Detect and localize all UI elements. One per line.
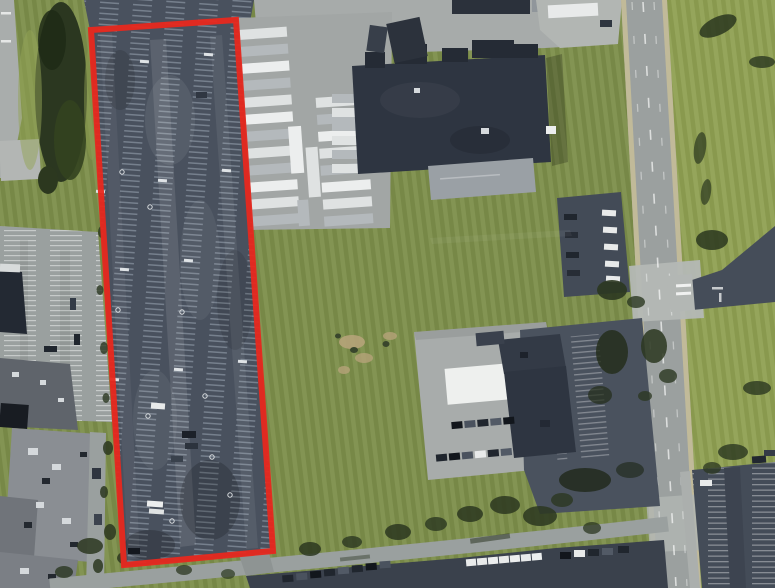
car bbox=[196, 92, 207, 98]
bush bbox=[335, 334, 341, 339]
car bbox=[510, 555, 521, 563]
car bbox=[365, 563, 376, 571]
rooftop-structure bbox=[508, 44, 538, 58]
car bbox=[605, 261, 619, 268]
pavement-marking bbox=[184, 259, 193, 263]
pavement-marking bbox=[1, 40, 11, 43]
tree-canopy bbox=[425, 517, 447, 531]
car bbox=[70, 298, 76, 310]
rooftop-unit bbox=[12, 372, 19, 377]
rooftop-unit bbox=[42, 478, 50, 484]
car bbox=[151, 403, 165, 410]
building-roof-dark-lower bbox=[504, 366, 576, 458]
north-building-edge bbox=[452, 0, 530, 14]
tree-canopy bbox=[597, 280, 627, 300]
pavement-marking bbox=[120, 268, 129, 272]
tree-shadow bbox=[616, 462, 644, 478]
dirt-patch bbox=[383, 332, 397, 340]
bush bbox=[93, 559, 103, 573]
bush bbox=[383, 341, 390, 347]
dock-trailer bbox=[332, 136, 358, 145]
car bbox=[338, 567, 349, 575]
tree-canopy bbox=[299, 542, 321, 556]
tree-shadow bbox=[743, 381, 771, 395]
tree-canopy bbox=[583, 522, 601, 534]
asphalt-patch bbox=[180, 460, 240, 540]
rooftop-unit bbox=[20, 568, 29, 574]
pavement-marking bbox=[158, 179, 167, 183]
car bbox=[752, 456, 766, 464]
car bbox=[488, 449, 500, 457]
trailer bbox=[548, 3, 599, 19]
car bbox=[147, 500, 163, 507]
tree-shadow bbox=[559, 468, 611, 492]
tree-canopy bbox=[457, 506, 483, 522]
rooftop-unit bbox=[36, 502, 44, 508]
tree-canopy bbox=[718, 444, 748, 460]
car bbox=[603, 227, 617, 234]
car bbox=[352, 565, 363, 573]
car bbox=[488, 557, 499, 565]
roof-vent bbox=[481, 128, 489, 134]
rooftop-unit bbox=[80, 452, 87, 457]
tree-shadow bbox=[749, 56, 775, 68]
tree-canopy bbox=[627, 296, 645, 308]
pavement-marking bbox=[712, 287, 723, 290]
car bbox=[521, 554, 532, 562]
car bbox=[296, 573, 307, 581]
tree-canopy bbox=[55, 566, 73, 578]
car bbox=[560, 552, 571, 559]
asphalt-light-patch bbox=[133, 370, 177, 470]
car bbox=[618, 546, 629, 553]
grass-highlight bbox=[18, 30, 42, 170]
tree-canopy bbox=[523, 506, 557, 526]
tree-canopy bbox=[38, 10, 66, 70]
pavement-marking bbox=[140, 60, 149, 64]
rooftop-unit bbox=[70, 542, 78, 547]
building-roof-small bbox=[476, 331, 505, 346]
car bbox=[451, 421, 463, 429]
warehouse-roof bbox=[352, 55, 551, 174]
car bbox=[128, 548, 140, 554]
rooftop-unit bbox=[540, 420, 550, 427]
car bbox=[379, 561, 390, 569]
car bbox=[466, 559, 477, 567]
car bbox=[501, 448, 513, 456]
dock-trailer bbox=[332, 164, 358, 173]
rooftop-unit bbox=[40, 380, 46, 385]
tree-canopy bbox=[588, 386, 612, 404]
aerial-map-canvas[interactable] bbox=[0, 0, 775, 588]
tree-canopy bbox=[490, 496, 520, 514]
asphalt-light-patch bbox=[145, 75, 195, 165]
dock-trailer bbox=[332, 150, 358, 159]
tree-canopy bbox=[38, 166, 58, 194]
car bbox=[600, 20, 612, 27]
bush bbox=[350, 347, 358, 353]
aerial-map-viewport[interactable] bbox=[0, 0, 775, 588]
tree-canopy bbox=[696, 230, 728, 250]
pavement-marking bbox=[222, 169, 231, 173]
pavement-marking bbox=[238, 360, 247, 364]
dirt-patch bbox=[338, 366, 350, 374]
pavement-marking bbox=[174, 368, 183, 372]
car bbox=[602, 210, 616, 217]
dirt-patch bbox=[355, 353, 373, 363]
dock-trailer bbox=[332, 108, 358, 117]
car bbox=[567, 270, 580, 276]
rooftop-structure bbox=[472, 40, 514, 58]
car bbox=[310, 571, 321, 579]
tree-canopy bbox=[659, 369, 677, 383]
pavement-marking bbox=[719, 293, 722, 302]
bush bbox=[100, 486, 108, 498]
car bbox=[490, 418, 502, 426]
car bbox=[464, 420, 476, 428]
car bbox=[503, 417, 515, 425]
rooftop-unit bbox=[62, 518, 71, 524]
car bbox=[700, 480, 712, 486]
car bbox=[324, 569, 335, 577]
tree-canopy bbox=[551, 493, 573, 507]
trailer bbox=[297, 200, 310, 227]
car bbox=[764, 450, 775, 456]
roof-vent bbox=[414, 88, 420, 93]
asphalt-patch bbox=[125, 530, 175, 560]
car bbox=[149, 509, 164, 515]
car bbox=[588, 549, 599, 556]
tree-canopy bbox=[221, 569, 235, 579]
car bbox=[171, 456, 183, 462]
asphalt-patch bbox=[217, 250, 253, 350]
dirt-patch bbox=[339, 335, 365, 349]
car bbox=[74, 334, 80, 345]
tree-canopy bbox=[385, 524, 411, 540]
roof-mottle bbox=[450, 126, 510, 154]
tree-canopy bbox=[641, 329, 667, 363]
roof-darker-wing bbox=[0, 496, 38, 558]
car bbox=[604, 244, 618, 251]
car bbox=[566, 252, 579, 258]
tree-canopy bbox=[342, 536, 362, 548]
car bbox=[185, 443, 198, 449]
bush bbox=[103, 441, 113, 455]
car bbox=[182, 431, 196, 438]
roof-vent bbox=[546, 126, 556, 134]
roof-edge bbox=[0, 264, 20, 273]
tree-canopy bbox=[77, 538, 103, 554]
bush bbox=[100, 342, 108, 354]
car bbox=[475, 450, 487, 458]
car bbox=[44, 346, 57, 352]
asphalt-patch bbox=[105, 50, 135, 110]
rooftop-unit bbox=[58, 398, 64, 402]
truck bbox=[366, 25, 387, 53]
pavement-marking bbox=[204, 53, 213, 57]
car bbox=[449, 453, 461, 461]
car bbox=[282, 575, 293, 583]
bush bbox=[103, 393, 110, 403]
car bbox=[532, 553, 543, 561]
car bbox=[602, 548, 613, 555]
rooftop-unit bbox=[52, 464, 61, 470]
car bbox=[92, 468, 101, 479]
roof-mottle bbox=[380, 82, 460, 118]
rooftop-structure bbox=[365, 52, 385, 68]
roof-dark-section bbox=[0, 403, 29, 429]
tree-canopy bbox=[176, 565, 192, 575]
dock-trailer bbox=[332, 122, 358, 131]
pavement-marking bbox=[1, 12, 11, 15]
car bbox=[499, 556, 510, 564]
tree-canopy bbox=[703, 462, 721, 474]
bush bbox=[104, 524, 116, 540]
tree-canopy bbox=[54, 100, 86, 180]
car bbox=[94, 514, 102, 525]
rooftop-structure bbox=[442, 48, 468, 62]
rooftop-unit bbox=[520, 352, 528, 358]
building-roof-white bbox=[445, 363, 512, 404]
tree-canopy bbox=[596, 330, 628, 374]
bush bbox=[97, 285, 104, 295]
car bbox=[477, 419, 489, 427]
car bbox=[477, 558, 488, 566]
car bbox=[574, 550, 585, 557]
car bbox=[564, 214, 577, 220]
rooftop-unit bbox=[28, 448, 38, 455]
car bbox=[436, 454, 448, 462]
car bbox=[462, 451, 474, 459]
tree-canopy bbox=[638, 391, 652, 401]
rooftop-unit bbox=[24, 522, 32, 528]
